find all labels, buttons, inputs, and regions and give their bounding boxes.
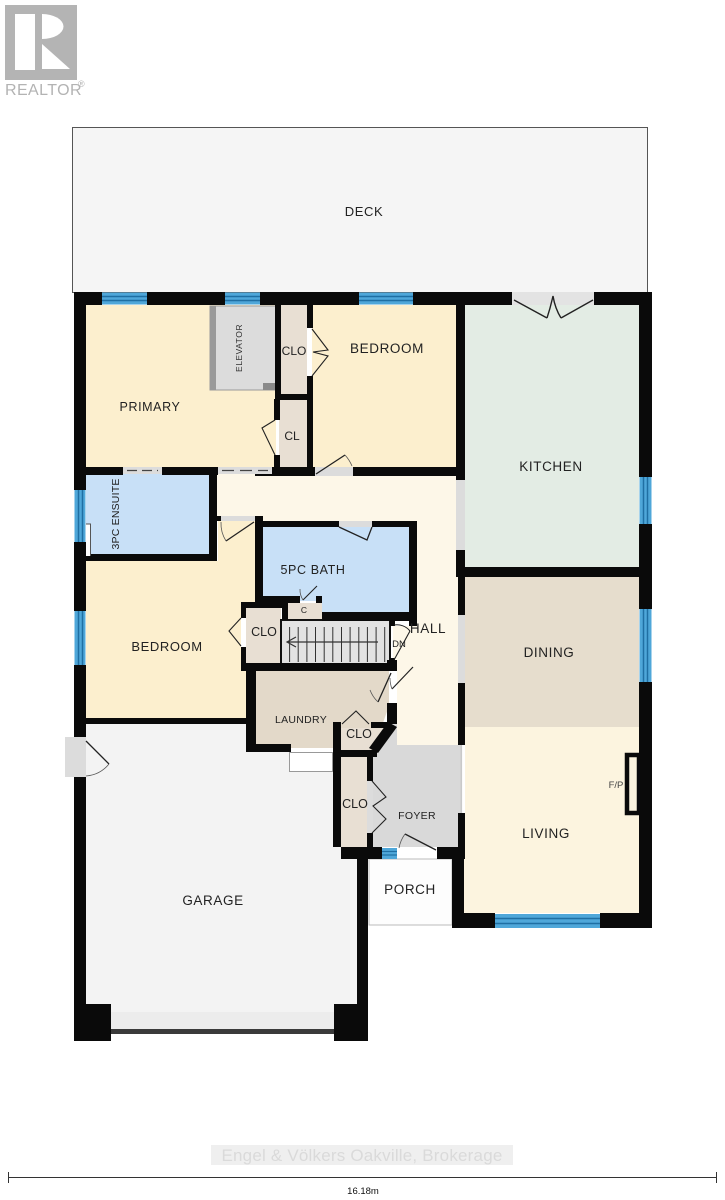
svg-text:LIVING: LIVING (522, 826, 570, 841)
svg-text:PORCH: PORCH (384, 882, 436, 897)
svg-text:CLO: CLO (346, 727, 372, 741)
svg-text:CL: CL (284, 429, 300, 443)
svg-text:CLO: CLO (342, 797, 368, 811)
svg-text:CLO: CLO (251, 625, 277, 639)
svg-text:5PC BATH: 5PC BATH (281, 563, 346, 577)
svg-text:3PC ENSUITE: 3PC ENSUITE (110, 478, 122, 549)
svg-text:FOYER: FOYER (398, 810, 436, 822)
svg-text:C: C (301, 605, 307, 615)
svg-text:LAUNDRY: LAUNDRY (275, 714, 327, 726)
svg-text:ELEVATOR: ELEVATOR (234, 324, 244, 372)
svg-text:BEDROOM: BEDROOM (131, 639, 202, 654)
svg-text:REALTOR: REALTOR (5, 82, 82, 99)
svg-text:HALL: HALL (410, 621, 446, 636)
svg-text:®: ® (78, 79, 85, 89)
svg-text:16.18m: 16.18m (347, 1186, 379, 1197)
svg-text:CLO: CLO (282, 344, 307, 358)
svg-text:F/P: F/P (609, 780, 624, 791)
svg-text:PRIMARY: PRIMARY (120, 400, 181, 414)
svg-text:Engel & Völkers Oakville, Brok: Engel & Völkers Oakville, Brokerage (221, 1146, 502, 1165)
svg-text:BEDROOM: BEDROOM (350, 341, 424, 356)
svg-text:DINING: DINING (524, 645, 575, 660)
svg-text:DN: DN (392, 639, 406, 650)
svg-text:GARAGE: GARAGE (182, 893, 243, 908)
svg-text:DECK: DECK (345, 204, 384, 219)
svg-text:KITCHEN: KITCHEN (519, 459, 582, 474)
